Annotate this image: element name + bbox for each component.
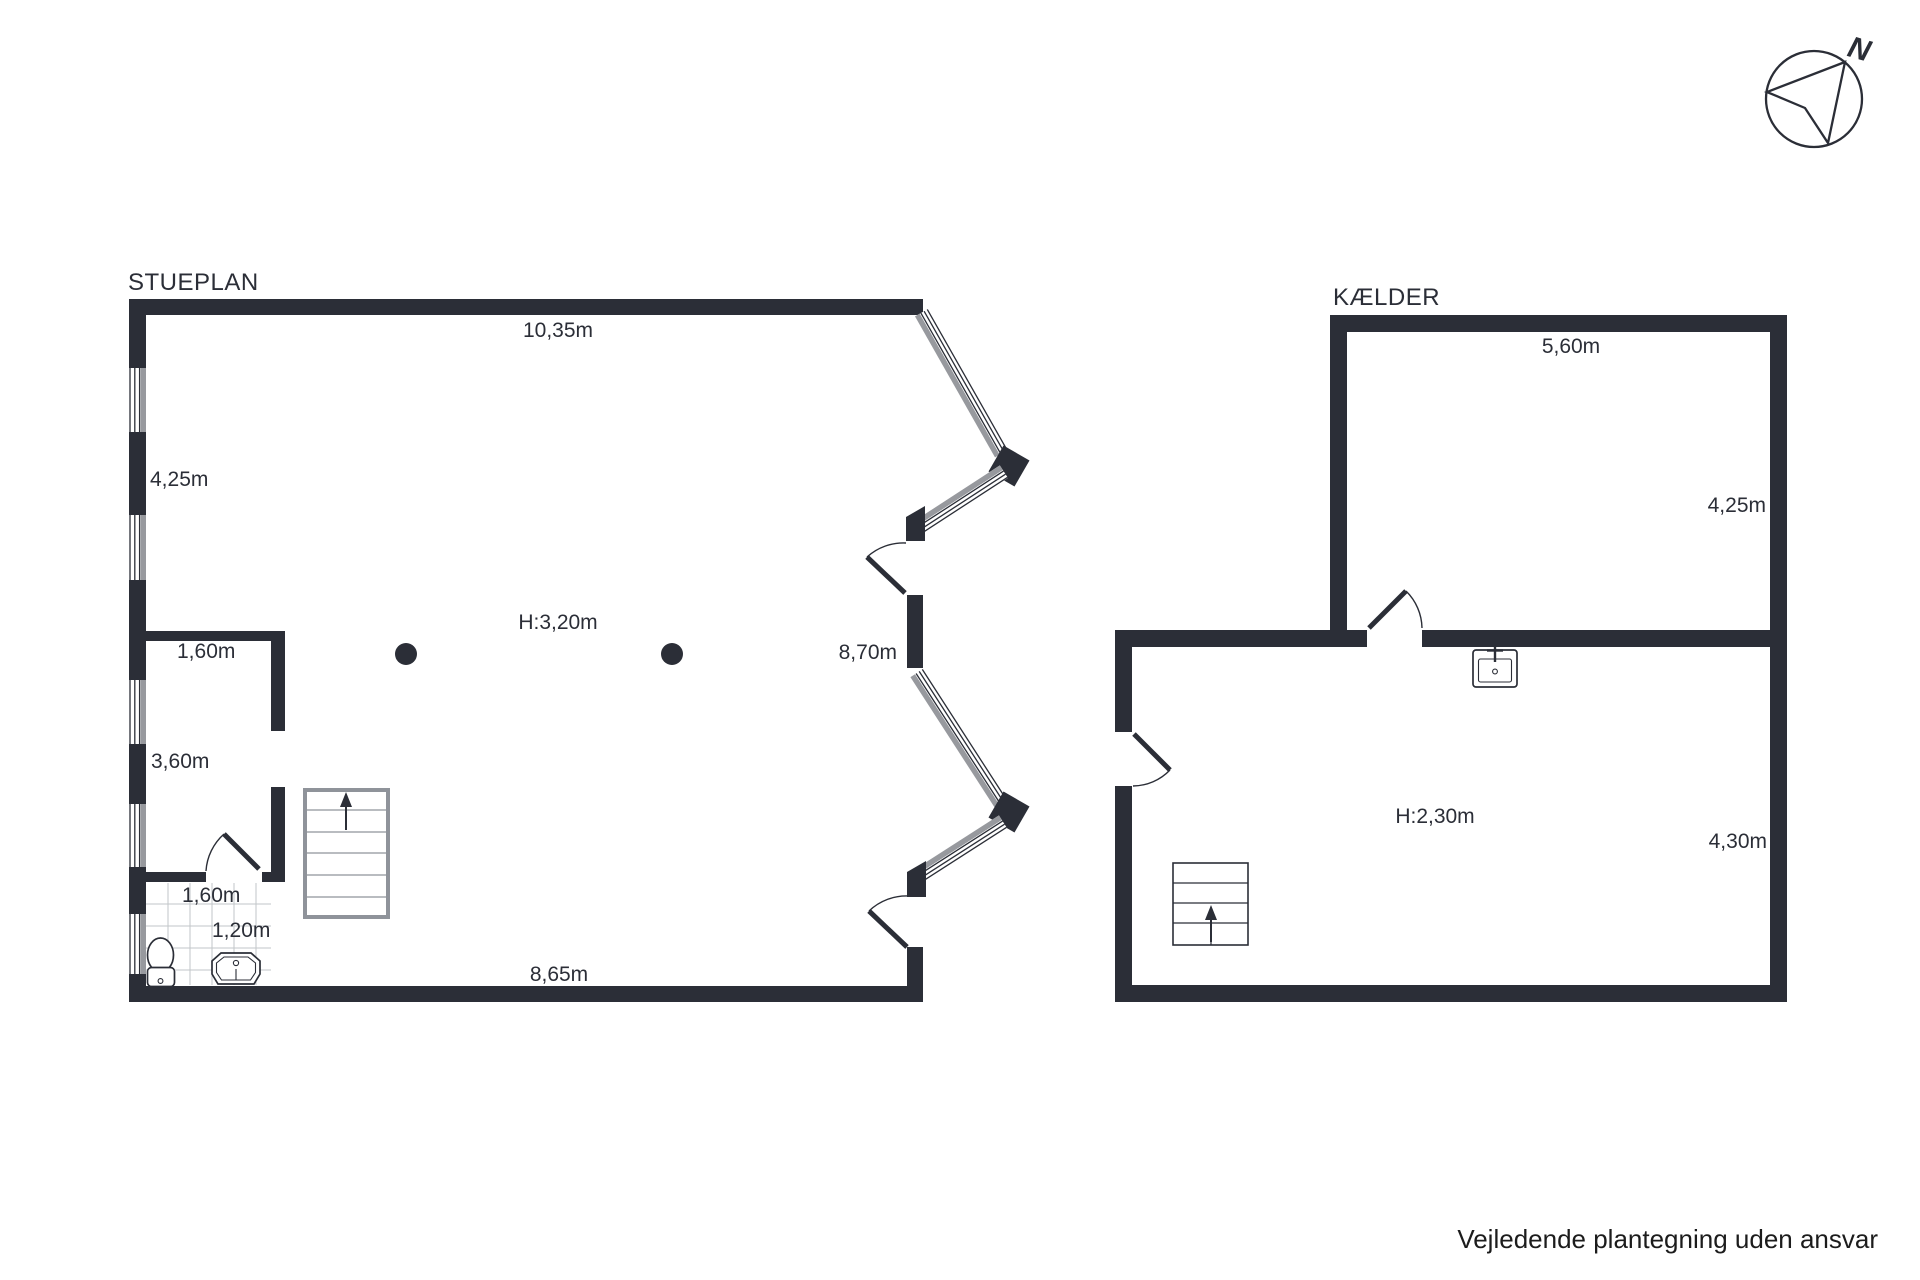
dim-label: 1,60m xyxy=(177,640,235,663)
bay-window-icon xyxy=(910,669,1007,807)
toilet-icon xyxy=(148,938,175,987)
stueplan-title: STUEPLAN xyxy=(128,269,259,296)
column-dot xyxy=(661,643,683,665)
wall-hall-right-lower xyxy=(271,787,285,872)
wall-left-seg xyxy=(129,432,146,515)
bay-window-icon xyxy=(917,465,1008,532)
bay-window-icon xyxy=(915,309,1008,457)
compass-north-label: N xyxy=(1844,31,1875,69)
ceiling-height-label: H:2,30m xyxy=(1395,805,1474,828)
wall-left-seg xyxy=(129,974,146,1002)
dim-label: 5,60m xyxy=(1542,335,1600,358)
window-icon xyxy=(129,515,146,580)
door-arc xyxy=(1133,770,1170,786)
ceiling-height-label: H:3,20m xyxy=(518,611,597,634)
wall-bottom xyxy=(129,986,923,1002)
compass: N xyxy=(1766,31,1875,147)
wall-bath-top-left xyxy=(146,872,206,882)
wall-step-right xyxy=(1422,630,1787,647)
wall-left-seg xyxy=(129,867,146,914)
kaelder-labels: 5,60m 4,25m H:2,30m 4,30m xyxy=(1395,335,1767,853)
door-leaf xyxy=(224,834,259,869)
bay-window-icon xyxy=(918,815,1007,880)
dim-label: 3,60m xyxy=(151,750,209,773)
compass-circle-icon xyxy=(1766,51,1862,147)
dim-label: 4,30m xyxy=(1709,830,1767,853)
wall-left-lower-seg xyxy=(1115,786,1132,1002)
kaelder-title: KÆLDER xyxy=(1333,284,1440,311)
wall-right-mid xyxy=(907,595,923,668)
floorplan-page: STUEPLAN xyxy=(0,0,1920,1280)
door-arc xyxy=(1406,591,1422,628)
sink-icon xyxy=(212,953,260,984)
floorplan-drawing: STUEPLAN xyxy=(0,0,1920,1280)
window-icon xyxy=(129,914,146,974)
stueplan-stairs xyxy=(305,790,388,917)
wall-left-upper xyxy=(1330,315,1347,640)
bay-corner-post xyxy=(907,861,926,897)
window-icon xyxy=(129,368,146,432)
wall-top xyxy=(1330,315,1787,332)
disclaimer-text: Vejledende plantegning uden ansvar xyxy=(1457,1224,1878,1254)
wall-hall-right-upper xyxy=(271,631,285,731)
dim-label: 8,70m xyxy=(839,641,897,664)
column-dot xyxy=(395,643,417,665)
kaelder-stairs xyxy=(1173,863,1248,945)
door-leaf xyxy=(869,911,907,947)
wall-step-left xyxy=(1115,630,1367,647)
wall-bottom-right-stub xyxy=(907,947,923,992)
kaelder-doors xyxy=(1133,591,1422,786)
door-arc xyxy=(867,543,906,557)
stueplan-walls xyxy=(129,299,923,1002)
dim-label: 1,60m xyxy=(182,884,240,907)
dim-label: 4,25m xyxy=(1708,494,1766,517)
dim-label: 10,35m xyxy=(523,319,593,342)
door-arc xyxy=(206,834,224,871)
wall-right xyxy=(1770,315,1787,1002)
wall-left-seg xyxy=(129,744,146,804)
door-leaf xyxy=(867,557,905,593)
stueplan-labels: 10,35m 4,25m 1,60m 3,60m 1,60m 1,20m H:3… xyxy=(150,319,897,986)
window-icon xyxy=(129,804,146,867)
stueplan-bay-windows xyxy=(906,309,1030,897)
dim-label: 4,25m xyxy=(150,468,208,491)
door-leaf xyxy=(1369,591,1406,628)
stueplan-plan: STUEPLAN xyxy=(128,269,1030,1002)
door-arc xyxy=(869,896,909,911)
wall-top xyxy=(129,299,923,315)
wall-bottom xyxy=(1115,985,1787,1002)
dim-label: 1,20m xyxy=(212,919,270,942)
kaelder-sink-icon xyxy=(1473,646,1517,687)
wall-left-seg xyxy=(129,580,146,680)
wall-left-lower-seg xyxy=(1115,630,1132,732)
wall-left-seg xyxy=(129,299,146,368)
door-leaf xyxy=(1134,734,1170,770)
window-icon xyxy=(129,680,146,744)
wall-bath-top-right xyxy=(262,872,285,882)
dim-label: 8,65m xyxy=(530,963,588,986)
bay-corner-post xyxy=(906,506,925,541)
kaelder-plan: KÆLDER xyxy=(1115,284,1787,1002)
